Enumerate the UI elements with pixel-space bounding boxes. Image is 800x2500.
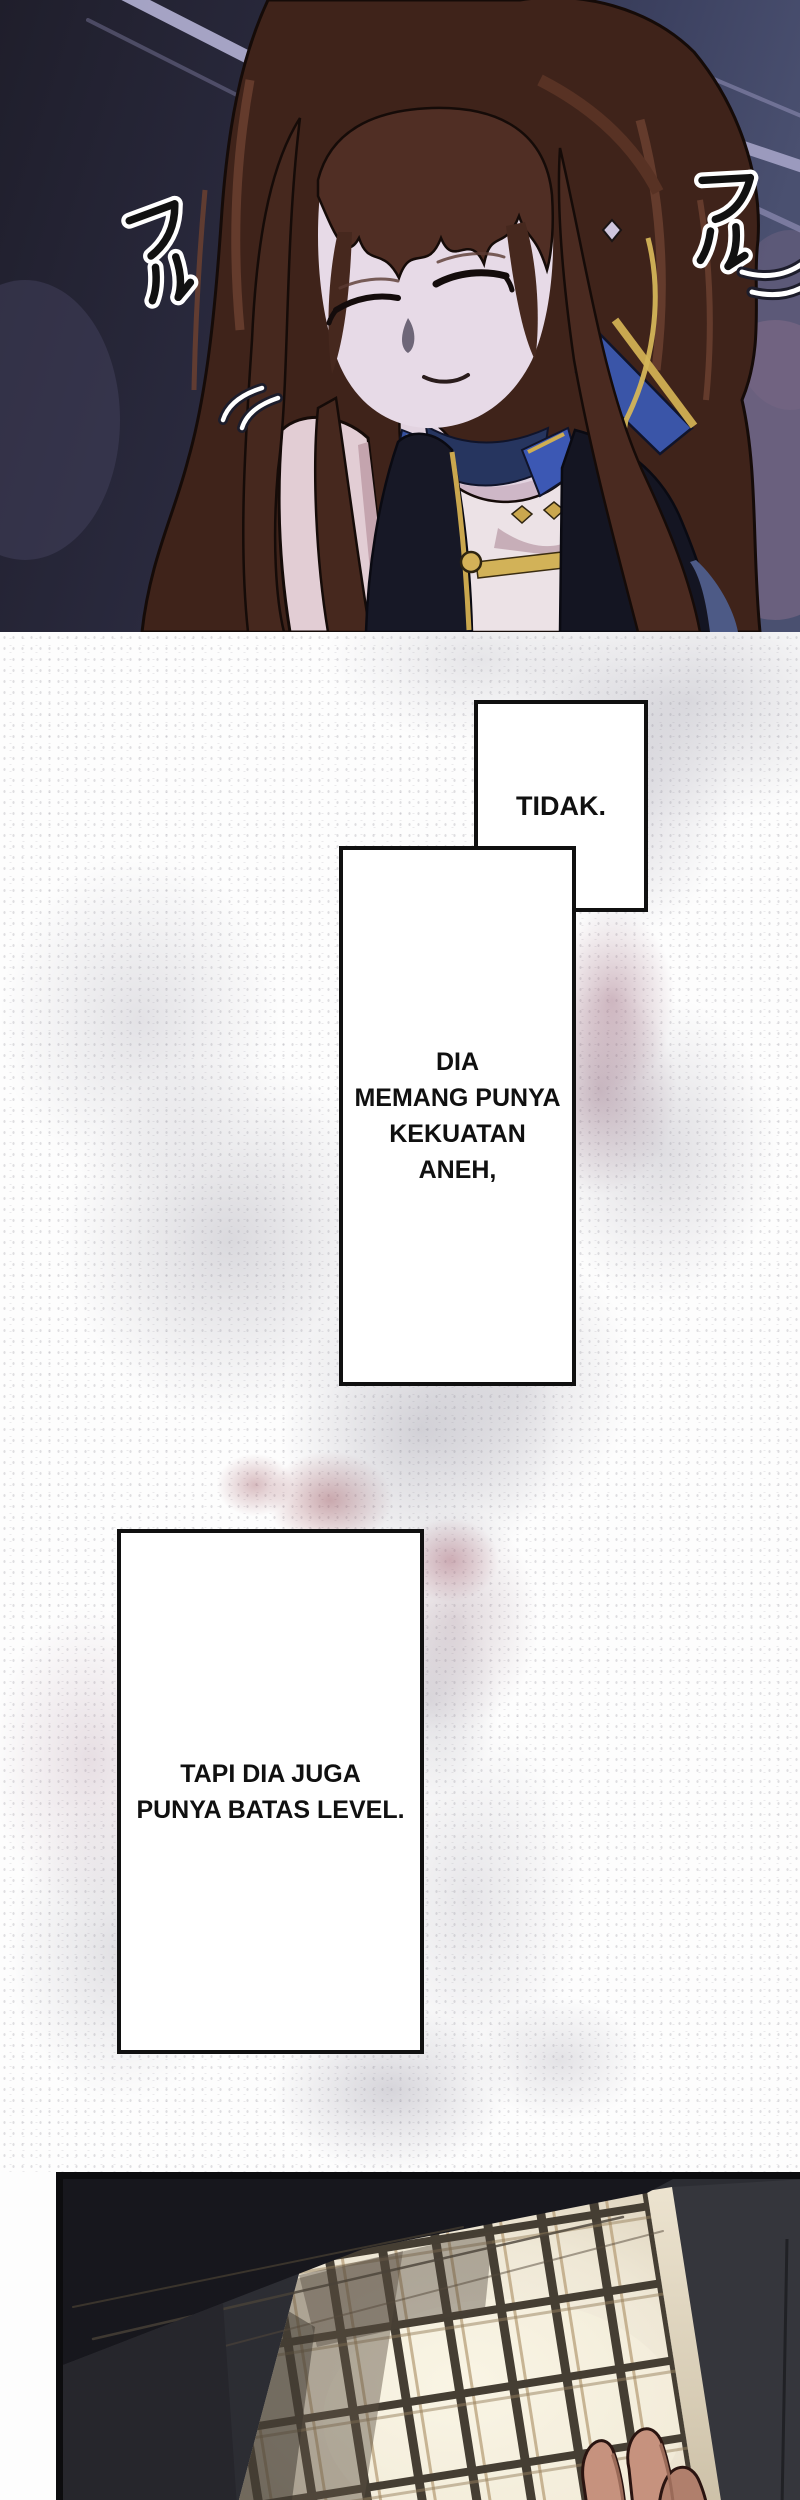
comic-page: TIDAK. DIA MEMANG PUNYA KEKUATAN ANEH, T…	[0, 0, 800, 2500]
window-art	[63, 2179, 800, 2500]
panel-character	[0, 0, 800, 632]
character-art	[0, 0, 800, 632]
bubble-join-patch	[478, 850, 572, 908]
speech-text: KEKUATAN	[389, 1116, 526, 1152]
speech-bubble-batas-level: TAPI DIA JUGA PUNYA BATAS LEVEL.	[117, 1529, 424, 2054]
gold-button	[461, 552, 481, 572]
speech-text: TAPI DIA JUGA	[180, 1756, 361, 1792]
speech-text: DIA	[436, 1044, 479, 1080]
speech-text: MEMANG PUNYA	[354, 1080, 560, 1116]
speech-bubble-kekuatan: DIA MEMANG PUNYA KEKUATAN ANEH,	[339, 846, 576, 1386]
speech-text: PUNYA BATAS LEVEL.	[136, 1792, 404, 1828]
speech-text: ANEH,	[419, 1152, 497, 1188]
panel-window	[56, 2172, 800, 2500]
speech-text: TIDAK.	[516, 788, 606, 824]
